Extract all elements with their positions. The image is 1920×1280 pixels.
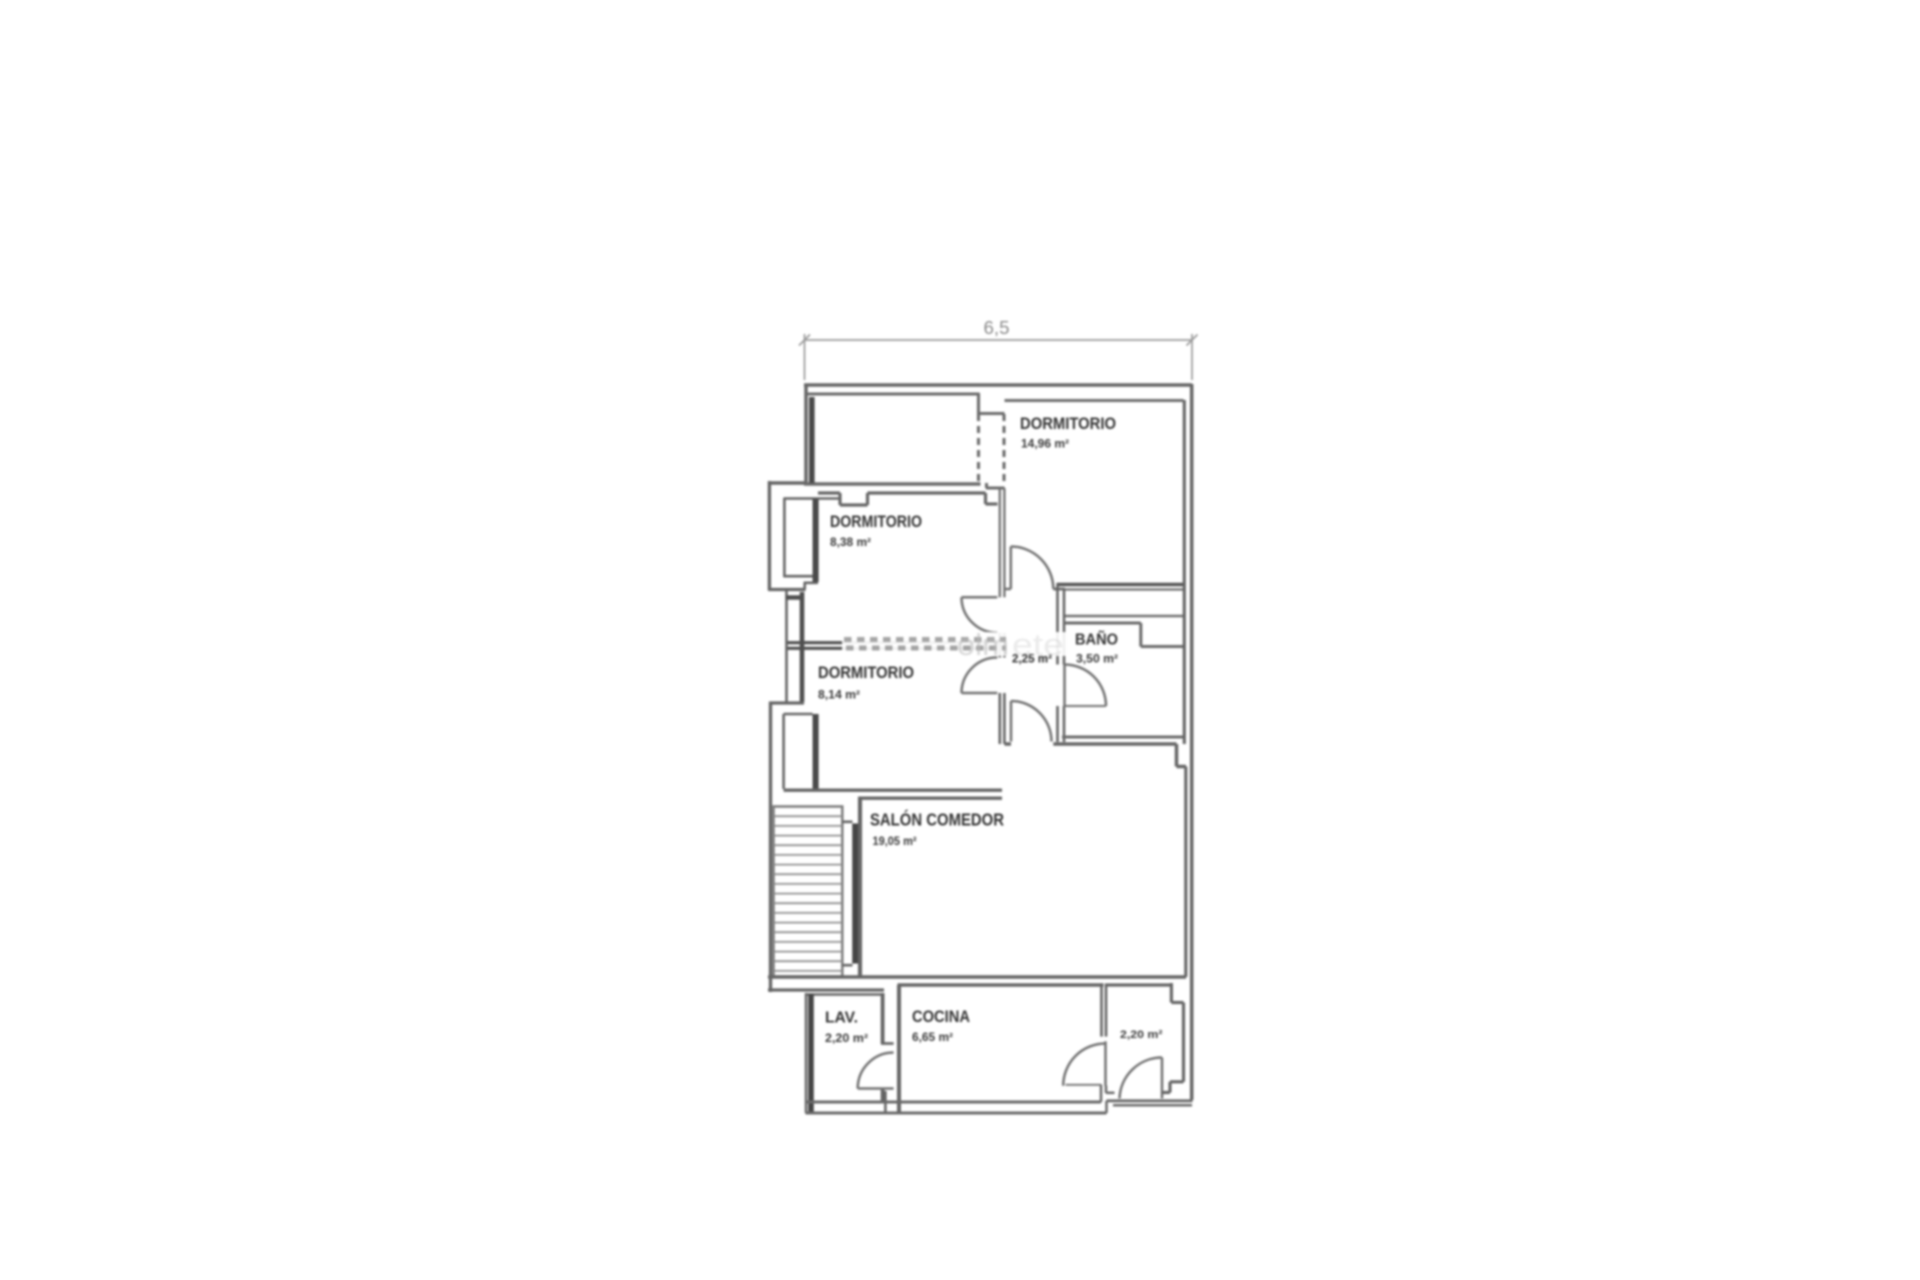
svg-text:19,05 m²: 19,05 m² xyxy=(873,834,917,848)
svg-text:LAV.: LAV. xyxy=(825,1010,858,1027)
svg-text:COCINA: COCINA xyxy=(912,1008,970,1026)
svg-text:14,96 m²: 14,96 m² xyxy=(1021,439,1069,451)
svg-text:3,50 m²: 3,50 m² xyxy=(1076,654,1118,666)
svg-text:2,20 m²: 2,20 m² xyxy=(1120,1029,1163,1041)
svg-text:BAÑO: BAÑO xyxy=(1075,629,1118,649)
svg-text:8,14 m²: 8,14 m² xyxy=(818,690,860,702)
svg-text:DORMITORIO: DORMITORIO xyxy=(818,663,914,682)
svg-text:SALÓN COMEDOR: SALÓN COMEDOR xyxy=(870,809,1004,830)
svg-text:2,20 m²: 2,20 m² xyxy=(825,1033,868,1045)
svg-text:DORMITORIO: DORMITORIO xyxy=(830,512,922,531)
svg-text:DORMITORIO: DORMITORIO xyxy=(1020,414,1116,433)
svg-text:8,38 m²: 8,38 m² xyxy=(830,537,871,549)
svg-text:6,5: 6,5 xyxy=(984,318,1010,338)
svg-text:6,65 m²: 6,65 m² xyxy=(912,1032,953,1044)
svg-text:olm: olm xyxy=(957,627,1009,662)
svg-text:2,25 m²: 2,25 m² xyxy=(1012,654,1052,666)
